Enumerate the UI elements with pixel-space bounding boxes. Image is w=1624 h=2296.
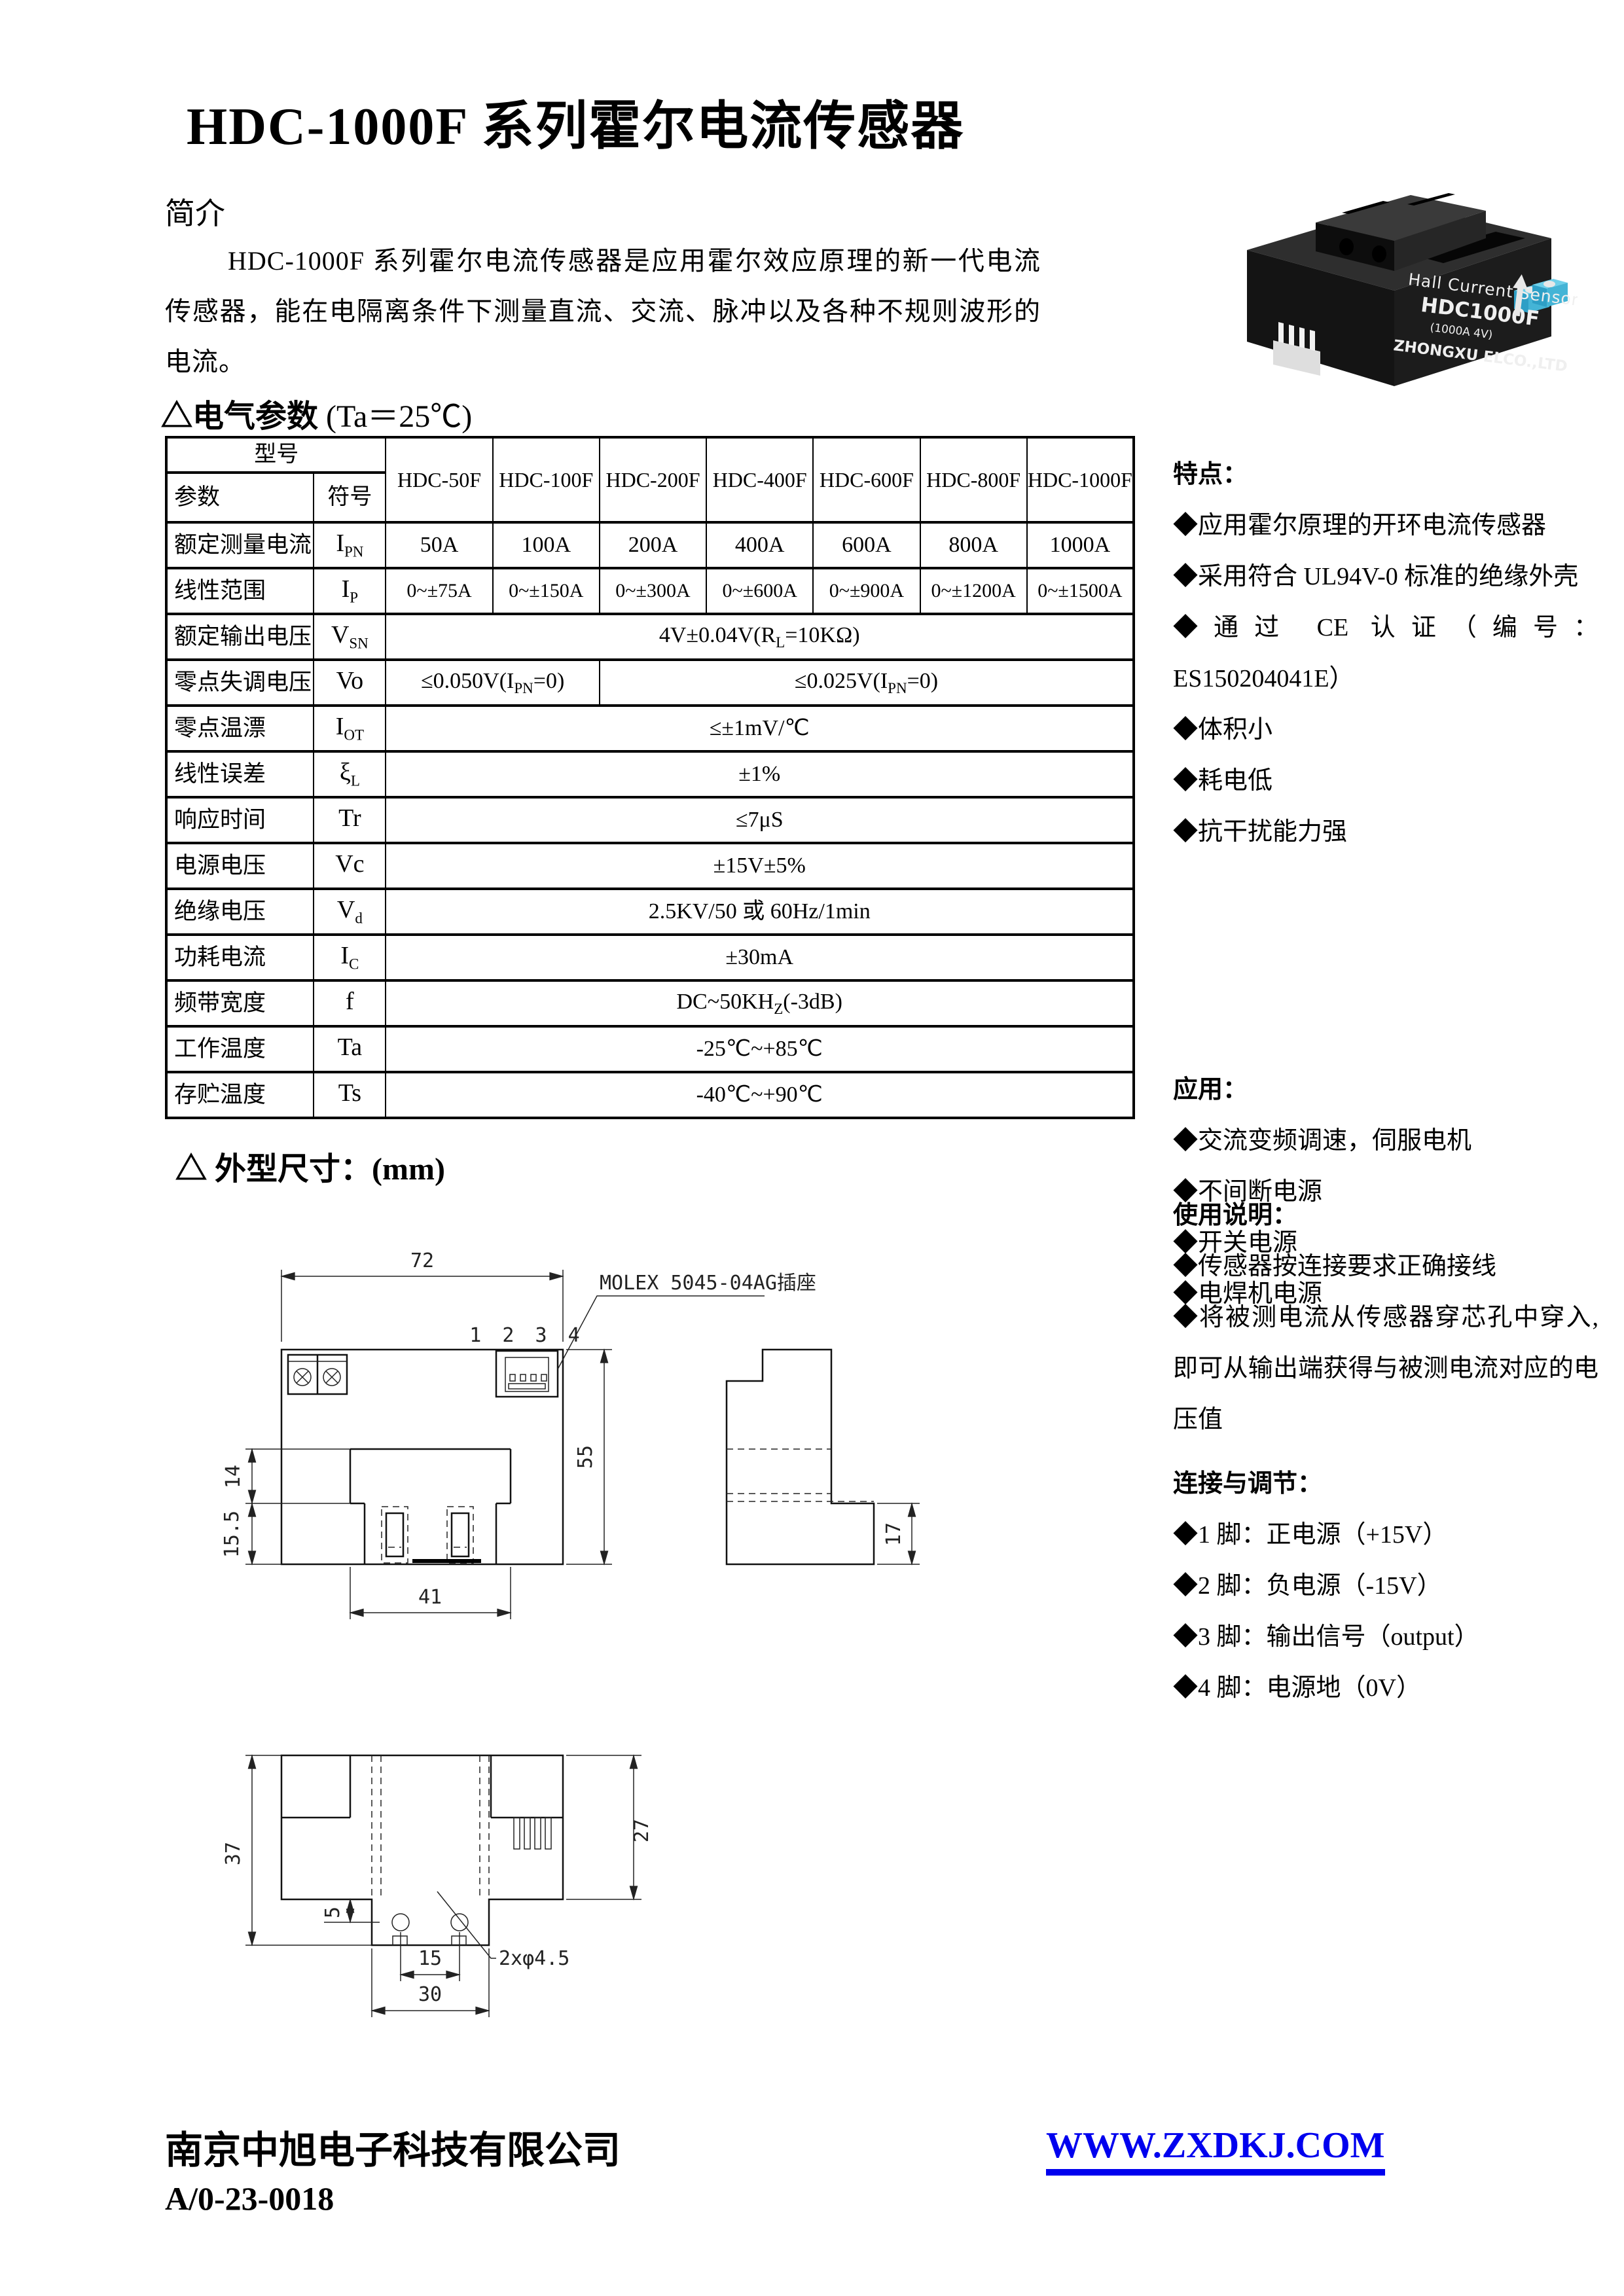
value-pre: ≤0.025V(I bbox=[795, 669, 888, 693]
symbol-sub: OT bbox=[344, 727, 364, 744]
corner-symbol-cell: 符号 bbox=[314, 473, 386, 522]
pin-item: ◆3 脚：输出信号（output） bbox=[1173, 1611, 1598, 1662]
photo-hole bbox=[1372, 245, 1386, 262]
symbol-base: Vo bbox=[336, 667, 364, 694]
symbol-sub: L bbox=[351, 773, 360, 789]
connection-section: 连接与调节： ◆1 脚：正电源（+15V） ◆2 脚：负电源（-15V） ◆3 … bbox=[1173, 1458, 1598, 1713]
param-row-ic: 功耗电流 IC ±30mA bbox=[166, 935, 1134, 980]
model-header: HDC-100F bbox=[493, 437, 600, 522]
dim-15-5: 15.5 bbox=[221, 1511, 244, 1558]
value-sub: PN bbox=[888, 680, 907, 696]
feature-item: ◆耗电低 bbox=[1173, 755, 1598, 806]
param-value: 1000A bbox=[1027, 522, 1134, 568]
model-header: HDC-600F bbox=[813, 437, 920, 522]
model-header: HDC-1000F bbox=[1027, 437, 1134, 522]
param-row-ip: 线性范围 IP 0~±75A 0~±150A 0~±300A 0~±600A 0… bbox=[166, 568, 1134, 614]
corner-param-cell: 参数 bbox=[166, 473, 314, 522]
connector-pin bbox=[1310, 330, 1315, 351]
param-value: 50A bbox=[386, 522, 492, 568]
params-table: 型号 HDC-50F HDC-100F HDC-200F HDC-400F HD… bbox=[165, 436, 1135, 1119]
symbol-sub: PN bbox=[344, 544, 363, 560]
param-value: 400A bbox=[706, 522, 813, 568]
param-value: 800A bbox=[920, 522, 1027, 568]
dim-27: 27 bbox=[630, 1819, 653, 1842]
side-view: 17 bbox=[727, 1350, 920, 1564]
params-condition: (Ta＝25℃) bbox=[326, 399, 472, 434]
param-label: 额定测量电流 bbox=[166, 522, 314, 568]
feature-item: ◆体积小 bbox=[1173, 704, 1598, 755]
symbol-sub: P bbox=[350, 590, 358, 606]
param-value: ≤±1mV/℃ bbox=[386, 706, 1134, 751]
usage-heading: 使用说明： bbox=[1173, 1190, 1598, 1241]
dim-55: 55 bbox=[574, 1445, 597, 1469]
param-row-iot: 零点温漂 IOT ≤±1mV/℃ bbox=[166, 706, 1134, 751]
param-row-tr: 响应时间 Tr ≤7μS bbox=[166, 797, 1134, 843]
feature-item: ◆通过 CE 认证（编号：ES150204041E） bbox=[1173, 602, 1598, 704]
param-label: 线性范围 bbox=[166, 568, 314, 614]
document-number: A/0-23-0018 bbox=[165, 2179, 334, 2217]
param-value: 0~±1200A bbox=[920, 568, 1027, 614]
param-value: 4V±0.04V(RL=10KΩ) bbox=[386, 614, 1134, 660]
param-value: ≤0.050V(IPN=0) bbox=[386, 660, 599, 706]
value-pre: ≤0.050V(I bbox=[421, 669, 514, 693]
product-photo: Hall Current Sensor HDC1000F (1000A 4V) … bbox=[1208, 145, 1578, 397]
param-label: 额定输出电压 bbox=[166, 614, 314, 660]
connection-heading: 连接与调节： bbox=[1173, 1458, 1598, 1509]
mounting-hole bbox=[392, 1914, 409, 1931]
dim-37: 37 bbox=[222, 1842, 245, 1865]
param-symbol: Vc bbox=[314, 843, 386, 889]
value-post: =0) bbox=[533, 669, 565, 693]
feature-item: ◆应用霍尔原理的开环电流传感器 bbox=[1173, 500, 1598, 551]
symbol-base: V bbox=[331, 621, 349, 649]
pin-item: ◆1 脚：正电源（+15V） bbox=[1173, 1509, 1598, 1560]
page-title: HDC-1000F 系列霍尔电流传感器 bbox=[187, 84, 964, 160]
dim-30: 30 bbox=[418, 1983, 442, 2006]
param-row-vd: 绝缘电压 Vd 2.5KV/50 或 60Hz/1min bbox=[166, 889, 1134, 935]
value-pre: 4V±0.04V(R bbox=[659, 623, 776, 647]
param-symbol: f bbox=[314, 980, 386, 1026]
pin-numbers-label: 1 2 3 4 bbox=[469, 1324, 584, 1347]
param-symbol: VSN bbox=[314, 614, 386, 660]
param-value: 0~±300A bbox=[600, 568, 706, 614]
model-header: HDC-400F bbox=[706, 437, 813, 522]
param-value: 0~±600A bbox=[706, 568, 813, 614]
param-value: 200A bbox=[600, 522, 706, 568]
application-item: ◆交流变频调速，伺服电机 bbox=[1173, 1115, 1598, 1166]
param-value: DC~50KHZ(-3dB) bbox=[386, 980, 1134, 1026]
param-value: 0~±900A bbox=[813, 568, 920, 614]
param-label: 工作温度 bbox=[166, 1026, 314, 1072]
param-value: ±1% bbox=[386, 751, 1134, 797]
param-symbol: Vd bbox=[314, 889, 386, 935]
param-value: ±30mA bbox=[386, 935, 1134, 980]
value-sub: L bbox=[776, 634, 785, 651]
param-value: ≤0.025V(IPN=0) bbox=[600, 660, 1134, 706]
param-value: -25℃~+85℃ bbox=[386, 1026, 1134, 1072]
connector-pin bbox=[1289, 325, 1294, 346]
usage-item: ◆传感器按连接要求正确接线 bbox=[1173, 1241, 1598, 1292]
param-label: 零点失调电压 bbox=[166, 660, 314, 706]
symbol-base: I bbox=[342, 575, 350, 603]
dim-5: 5 bbox=[321, 1907, 344, 1918]
bottom-view: 2xφ4.5 37 27 5 15 30 bbox=[222, 1755, 653, 2017]
param-label: 响应时间 bbox=[166, 797, 314, 843]
dim-15: 15 bbox=[418, 1947, 442, 1970]
symbol-base: Ta bbox=[338, 1033, 362, 1061]
features-section: 特点： ◆应用霍尔原理的开环电流传感器 ◆采用符合 UL94V-0 标准的绝缘外… bbox=[1173, 449, 1598, 857]
param-symbol: Vo bbox=[314, 660, 386, 706]
param-label: 绝缘电压 bbox=[166, 889, 314, 935]
dims-heading-text: △ 外型尺寸： bbox=[175, 1152, 372, 1187]
value-sub: PN bbox=[514, 680, 533, 696]
dims-unit: (mm) bbox=[372, 1152, 445, 1187]
dims-heading: △ 外型尺寸：(mm) bbox=[175, 1143, 445, 1189]
model-header: HDC-800F bbox=[920, 437, 1027, 522]
params-heading: △电气参数 (Ta＝25℃) bbox=[161, 390, 472, 436]
dim-41: 41 bbox=[418, 1586, 442, 1609]
dim-17: 17 bbox=[882, 1522, 905, 1546]
param-symbol: Tr bbox=[314, 797, 386, 843]
symbol-base: Vc bbox=[335, 850, 364, 878]
param-row-vo: 零点失调电压 Vo ≤0.050V(IPN=0) ≤0.025V(IPN=0) bbox=[166, 660, 1134, 706]
param-label: 功耗电流 bbox=[166, 935, 314, 980]
holes-label: 2xφ4.5 bbox=[499, 1947, 569, 1970]
feature-item: ◆抗干扰能力强 bbox=[1173, 806, 1598, 857]
symbol-sub: C bbox=[349, 956, 359, 973]
pin-item: ◆2 脚：负电源（-15V） bbox=[1173, 1560, 1598, 1611]
param-label: 零点温漂 bbox=[166, 706, 314, 751]
value-post: =10KΩ) bbox=[785, 623, 859, 647]
symbol-base: Ts bbox=[338, 1079, 361, 1107]
param-value: ≤7μS bbox=[386, 797, 1134, 843]
usage-section: 使用说明： ◆传感器按连接要求正确接线 ◆将被测电流从传感器穿芯孔中穿入,即可从… bbox=[1173, 1190, 1598, 1445]
param-symbol: ξL bbox=[314, 751, 386, 797]
symbol-base: f bbox=[346, 988, 354, 1015]
param-symbol: Ts bbox=[314, 1072, 386, 1118]
intro-paragraph: HDC-1000F 系列霍尔电流传感器是应用霍尔效应原理的新一代电流传感器，能在… bbox=[165, 236, 1041, 387]
website-link[interactable]: WWW.ZXDKJ.COM bbox=[1046, 2125, 1385, 2176]
param-symbol: Ta bbox=[314, 1026, 386, 1072]
symbol-base: V bbox=[337, 896, 355, 924]
param-row-ta: 工作温度 Ta -25℃~+85℃ bbox=[166, 1026, 1134, 1072]
param-label: 存贮温度 bbox=[166, 1072, 314, 1118]
param-value: 2.5KV/50 或 60Hz/1min bbox=[386, 889, 1134, 935]
dim-14: 14 bbox=[222, 1465, 245, 1488]
company-name: 南京中旭电子科技有限公司 bbox=[165, 2119, 621, 2174]
mounting-hole bbox=[451, 1914, 468, 1931]
features-heading: 特点： bbox=[1173, 449, 1598, 500]
value-pre: DC~50KH bbox=[676, 990, 774, 1014]
symbol-base: Tr bbox=[338, 804, 361, 832]
param-label: 频带宽度 bbox=[166, 980, 314, 1026]
model-header: HDC-50F bbox=[386, 437, 492, 522]
param-symbol: IPN bbox=[314, 522, 386, 568]
param-label: 线性误差 bbox=[166, 751, 314, 797]
param-value: -40℃~+90℃ bbox=[386, 1072, 1134, 1118]
param-label: 电源电压 bbox=[166, 843, 314, 889]
pin-item: ◆4 脚：电源地（0V） bbox=[1173, 1662, 1598, 1713]
molex-label: MOLEX 5045-04AG插座 bbox=[600, 1272, 816, 1295]
connector-pin bbox=[1278, 322, 1284, 343]
symbol-base: I bbox=[336, 529, 344, 557]
param-value: 0~±75A bbox=[386, 568, 492, 614]
params-heading-text: △电气参数 bbox=[161, 399, 318, 434]
symbol-sub: d bbox=[355, 910, 363, 927]
connector-pin bbox=[1299, 327, 1305, 348]
symbol-sub: SN bbox=[349, 636, 368, 652]
dim-72: 72 bbox=[410, 1249, 434, 1272]
corner-model-cell: 型号 bbox=[166, 437, 386, 473]
param-row-ts: 存贮温度 Ts -40℃~+90℃ bbox=[166, 1072, 1134, 1118]
symbol-base: I bbox=[340, 942, 349, 969]
feature-item: ◆采用符合 UL94V-0 标准的绝缘外壳 bbox=[1173, 551, 1598, 602]
param-value: ±15V±5% bbox=[386, 843, 1134, 889]
param-row-xil: 线性误差 ξL ±1% bbox=[166, 751, 1134, 797]
param-value: 100A bbox=[493, 522, 600, 568]
value-sub: Z bbox=[774, 1001, 783, 1017]
photo-hole bbox=[1339, 238, 1354, 255]
dimension-drawing: 1 2 3 4 MOLEX 5045-04AG插座 72 55 14 15.5 … bbox=[183, 1212, 1178, 2037]
param-value: 0~±1500A bbox=[1027, 568, 1134, 614]
model-header: HDC-200F bbox=[600, 437, 706, 522]
value-post: (-3dB) bbox=[783, 990, 842, 1014]
param-row-f: 频带宽度 f DC~50KHZ(-3dB) bbox=[166, 980, 1134, 1026]
usage-item: ◆将被测电流从传感器穿芯孔中穿入,即可从输出端获得与被测电流对应的电压值 bbox=[1173, 1292, 1598, 1445]
param-symbol: IC bbox=[314, 935, 386, 980]
param-row-vsn: 额定输出电压 VSN 4V±0.04V(RL=10KΩ) bbox=[166, 614, 1134, 660]
value-post: =0) bbox=[907, 669, 939, 693]
param-symbol: IP bbox=[314, 568, 386, 614]
param-row-ipn: 额定测量电流 IPN 50A 100A 200A 400A 600A 800A … bbox=[166, 522, 1134, 568]
param-value: 600A bbox=[813, 522, 920, 568]
param-value: 0~±150A bbox=[493, 568, 600, 614]
symbol-base: I bbox=[336, 713, 344, 740]
intro-heading: 简介 bbox=[165, 190, 225, 233]
applications-heading: 应用： bbox=[1173, 1064, 1598, 1115]
symbol-base: ξ bbox=[340, 759, 351, 786]
table-header-row-model: 型号 HDC-50F HDC-100F HDC-200F HDC-400F HD… bbox=[166, 437, 1134, 473]
param-symbol: IOT bbox=[314, 706, 386, 751]
param-row-vc: 电源电压 Vc ±15V±5% bbox=[166, 843, 1134, 889]
